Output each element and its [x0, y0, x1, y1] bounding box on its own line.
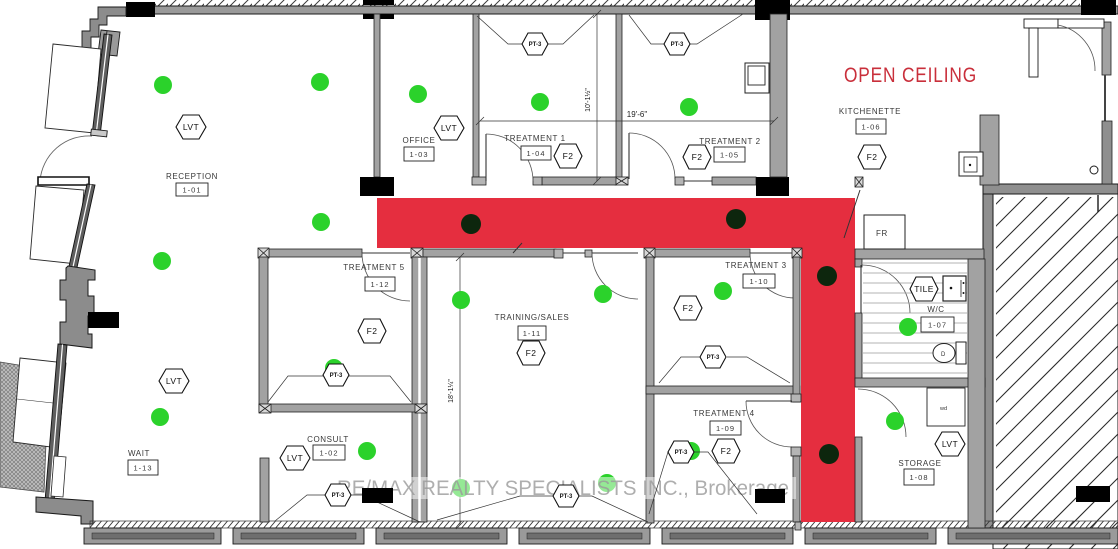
- svg-text:1-09: 1-09: [716, 424, 735, 433]
- svg-text:LVT: LVT: [942, 439, 958, 449]
- svg-text:1-04: 1-04: [526, 149, 545, 158]
- svg-text:PT-3: PT-3: [330, 373, 343, 379]
- svg-text:LVT: LVT: [166, 376, 182, 386]
- svg-text:TREATMENT 5: TREATMENT 5: [343, 263, 404, 272]
- svg-text:CONSULT: CONSULT: [307, 435, 349, 444]
- svg-text:LVT: LVT: [441, 123, 457, 133]
- svg-text:TREATMENT 4: TREATMENT 4: [693, 409, 754, 418]
- svg-text:FR: FR: [876, 229, 888, 238]
- svg-text:1-06: 1-06: [861, 123, 880, 132]
- svg-text:F2: F2: [563, 151, 574, 161]
- svg-text:10'-1½": 10'-1½": [584, 88, 592, 112]
- svg-text:F2: F2: [526, 348, 537, 358]
- svg-text:19'-6": 19'-6": [627, 110, 648, 119]
- svg-text:PT-3: PT-3: [671, 42, 684, 48]
- svg-text:1-01: 1-01: [182, 186, 201, 195]
- svg-text:18'-1¼": 18'-1¼": [448, 379, 455, 403]
- svg-text:PT-3: PT-3: [560, 494, 573, 500]
- svg-text:KITCHENETTE: KITCHENETTE: [839, 107, 901, 116]
- svg-text:PT-3: PT-3: [529, 42, 542, 48]
- svg-text:F2: F2: [721, 446, 732, 456]
- svg-text:STORAGE: STORAGE: [898, 459, 941, 468]
- svg-text:F2: F2: [683, 303, 694, 313]
- svg-text:1-10: 1-10: [749, 277, 768, 286]
- svg-text:PT-3: PT-3: [707, 355, 720, 361]
- svg-text:1-02: 1-02: [319, 449, 338, 458]
- svg-text:TREATMENT 2: TREATMENT 2: [699, 137, 760, 146]
- svg-text:1-03: 1-03: [409, 150, 428, 159]
- svg-text:1-12: 1-12: [370, 280, 389, 289]
- svg-text:RECEPTION: RECEPTION: [166, 172, 218, 181]
- svg-text:W/C: W/C: [927, 305, 944, 314]
- svg-text:1-05: 1-05: [720, 151, 739, 160]
- svg-text:TILE: TILE: [914, 284, 934, 294]
- svg-text:PT-3: PT-3: [332, 493, 345, 499]
- svg-text:1-08: 1-08: [909, 473, 928, 482]
- svg-text:TREATMENT 1: TREATMENT 1: [504, 134, 565, 143]
- svg-text:D: D: [941, 352, 946, 358]
- svg-text:1-07: 1-07: [928, 321, 947, 330]
- svg-text:OPEN CEILING: OPEN CEILING: [844, 64, 977, 87]
- svg-text:1-13: 1-13: [133, 464, 152, 473]
- svg-text:F2: F2: [367, 326, 378, 336]
- svg-text:PT-3: PT-3: [675, 450, 688, 456]
- svg-text:F2: F2: [867, 152, 878, 162]
- svg-text:LVT: LVT: [183, 122, 199, 132]
- svg-text:TREATMENT 3: TREATMENT 3: [725, 261, 786, 270]
- svg-text:F2: F2: [692, 152, 703, 162]
- svg-text:LVT: LVT: [287, 453, 303, 463]
- svg-text:OFFICE: OFFICE: [403, 136, 436, 145]
- svg-text:WAIT: WAIT: [128, 449, 150, 458]
- svg-text:1-11: 1-11: [523, 329, 541, 338]
- svg-text:wd: wd: [939, 406, 947, 412]
- svg-text:TRAINING/SALES: TRAINING/SALES: [495, 313, 570, 322]
